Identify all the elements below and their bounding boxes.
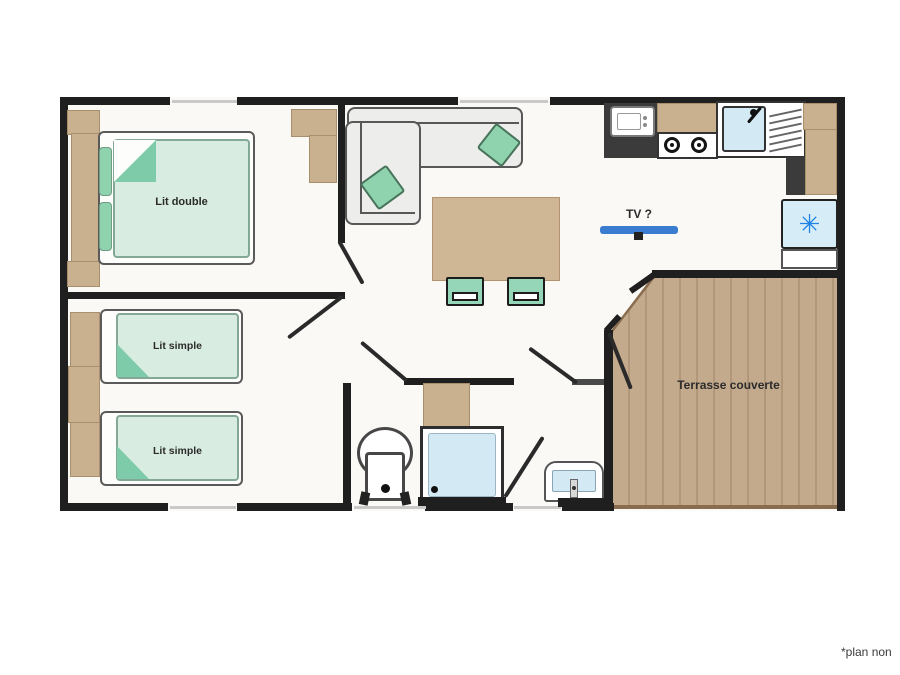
room-label-terrace: Terrasse couverte (636, 378, 821, 392)
kitchen-dark-strip (786, 157, 806, 195)
shower-drain (431, 486, 438, 493)
chair (507, 277, 545, 306)
room-label-lit-simple-1: Lit simple (116, 340, 239, 352)
wall-segment (343, 383, 351, 511)
pillow (99, 202, 112, 251)
chair-seat (452, 292, 478, 301)
sheet-fold (114, 140, 156, 182)
wall-segment (60, 503, 168, 511)
kitchen-counter (803, 103, 837, 130)
tv-label: TV ? (600, 207, 678, 221)
window (170, 506, 236, 509)
chair (446, 277, 484, 306)
kitchen-counter (657, 103, 718, 133)
microwave-button (643, 123, 647, 127)
drainboard-line (769, 144, 802, 153)
shower-tray (428, 433, 496, 497)
closet (309, 135, 337, 183)
kitchen-shelf (781, 249, 838, 269)
wall-segment (60, 97, 68, 511)
snowflake-icon: ✳ (799, 211, 821, 237)
stove-burner (664, 137, 680, 153)
microwave-button (643, 116, 647, 120)
wall-segment (837, 97, 845, 511)
window (354, 506, 426, 509)
wall-segment (60, 292, 345, 299)
wall-segment (237, 97, 458, 105)
wall-segment (652, 270, 845, 278)
wall-segment (604, 330, 613, 511)
pillow (99, 147, 112, 196)
microwave-door (617, 113, 641, 130)
burner-center (697, 143, 701, 147)
sofa-seam (360, 123, 362, 214)
fridge: ✳ (781, 199, 838, 249)
drainboard (769, 107, 802, 153)
closet (291, 109, 337, 137)
floor-plan: Lit double Lit simple Lit simple TV ? (0, 0, 900, 675)
window (460, 100, 548, 103)
wall-segment (237, 503, 352, 511)
bathroom-cabinet (423, 383, 470, 428)
wall-segment (60, 97, 170, 105)
wardrobe (68, 366, 100, 423)
microwave (610, 106, 655, 137)
wardrobe (67, 261, 100, 287)
window (514, 506, 561, 509)
dining-table (432, 197, 560, 281)
kitchen-sink (722, 106, 766, 152)
chair-seat (513, 292, 539, 301)
fixture-base (418, 497, 506, 506)
wardrobe (71, 133, 100, 262)
wardrobe (70, 422, 100, 477)
window (172, 100, 237, 103)
wardrobe (67, 110, 100, 135)
sofa-armrest (360, 212, 415, 214)
room-label-lit-simple-2: Lit simple (116, 445, 239, 457)
room-label-lit-double: Lit double (113, 196, 250, 208)
tv-stand (634, 232, 643, 240)
fixture-base (558, 498, 610, 507)
burner-center (670, 143, 674, 147)
toilet-button (381, 484, 390, 493)
washbasin-faucet-dot (572, 486, 576, 490)
plan-footnote: *plan non (841, 645, 892, 659)
kitchen-counter (805, 129, 837, 195)
wall-segment (338, 97, 345, 243)
stove-burner (691, 137, 707, 153)
wardrobe (70, 312, 100, 367)
